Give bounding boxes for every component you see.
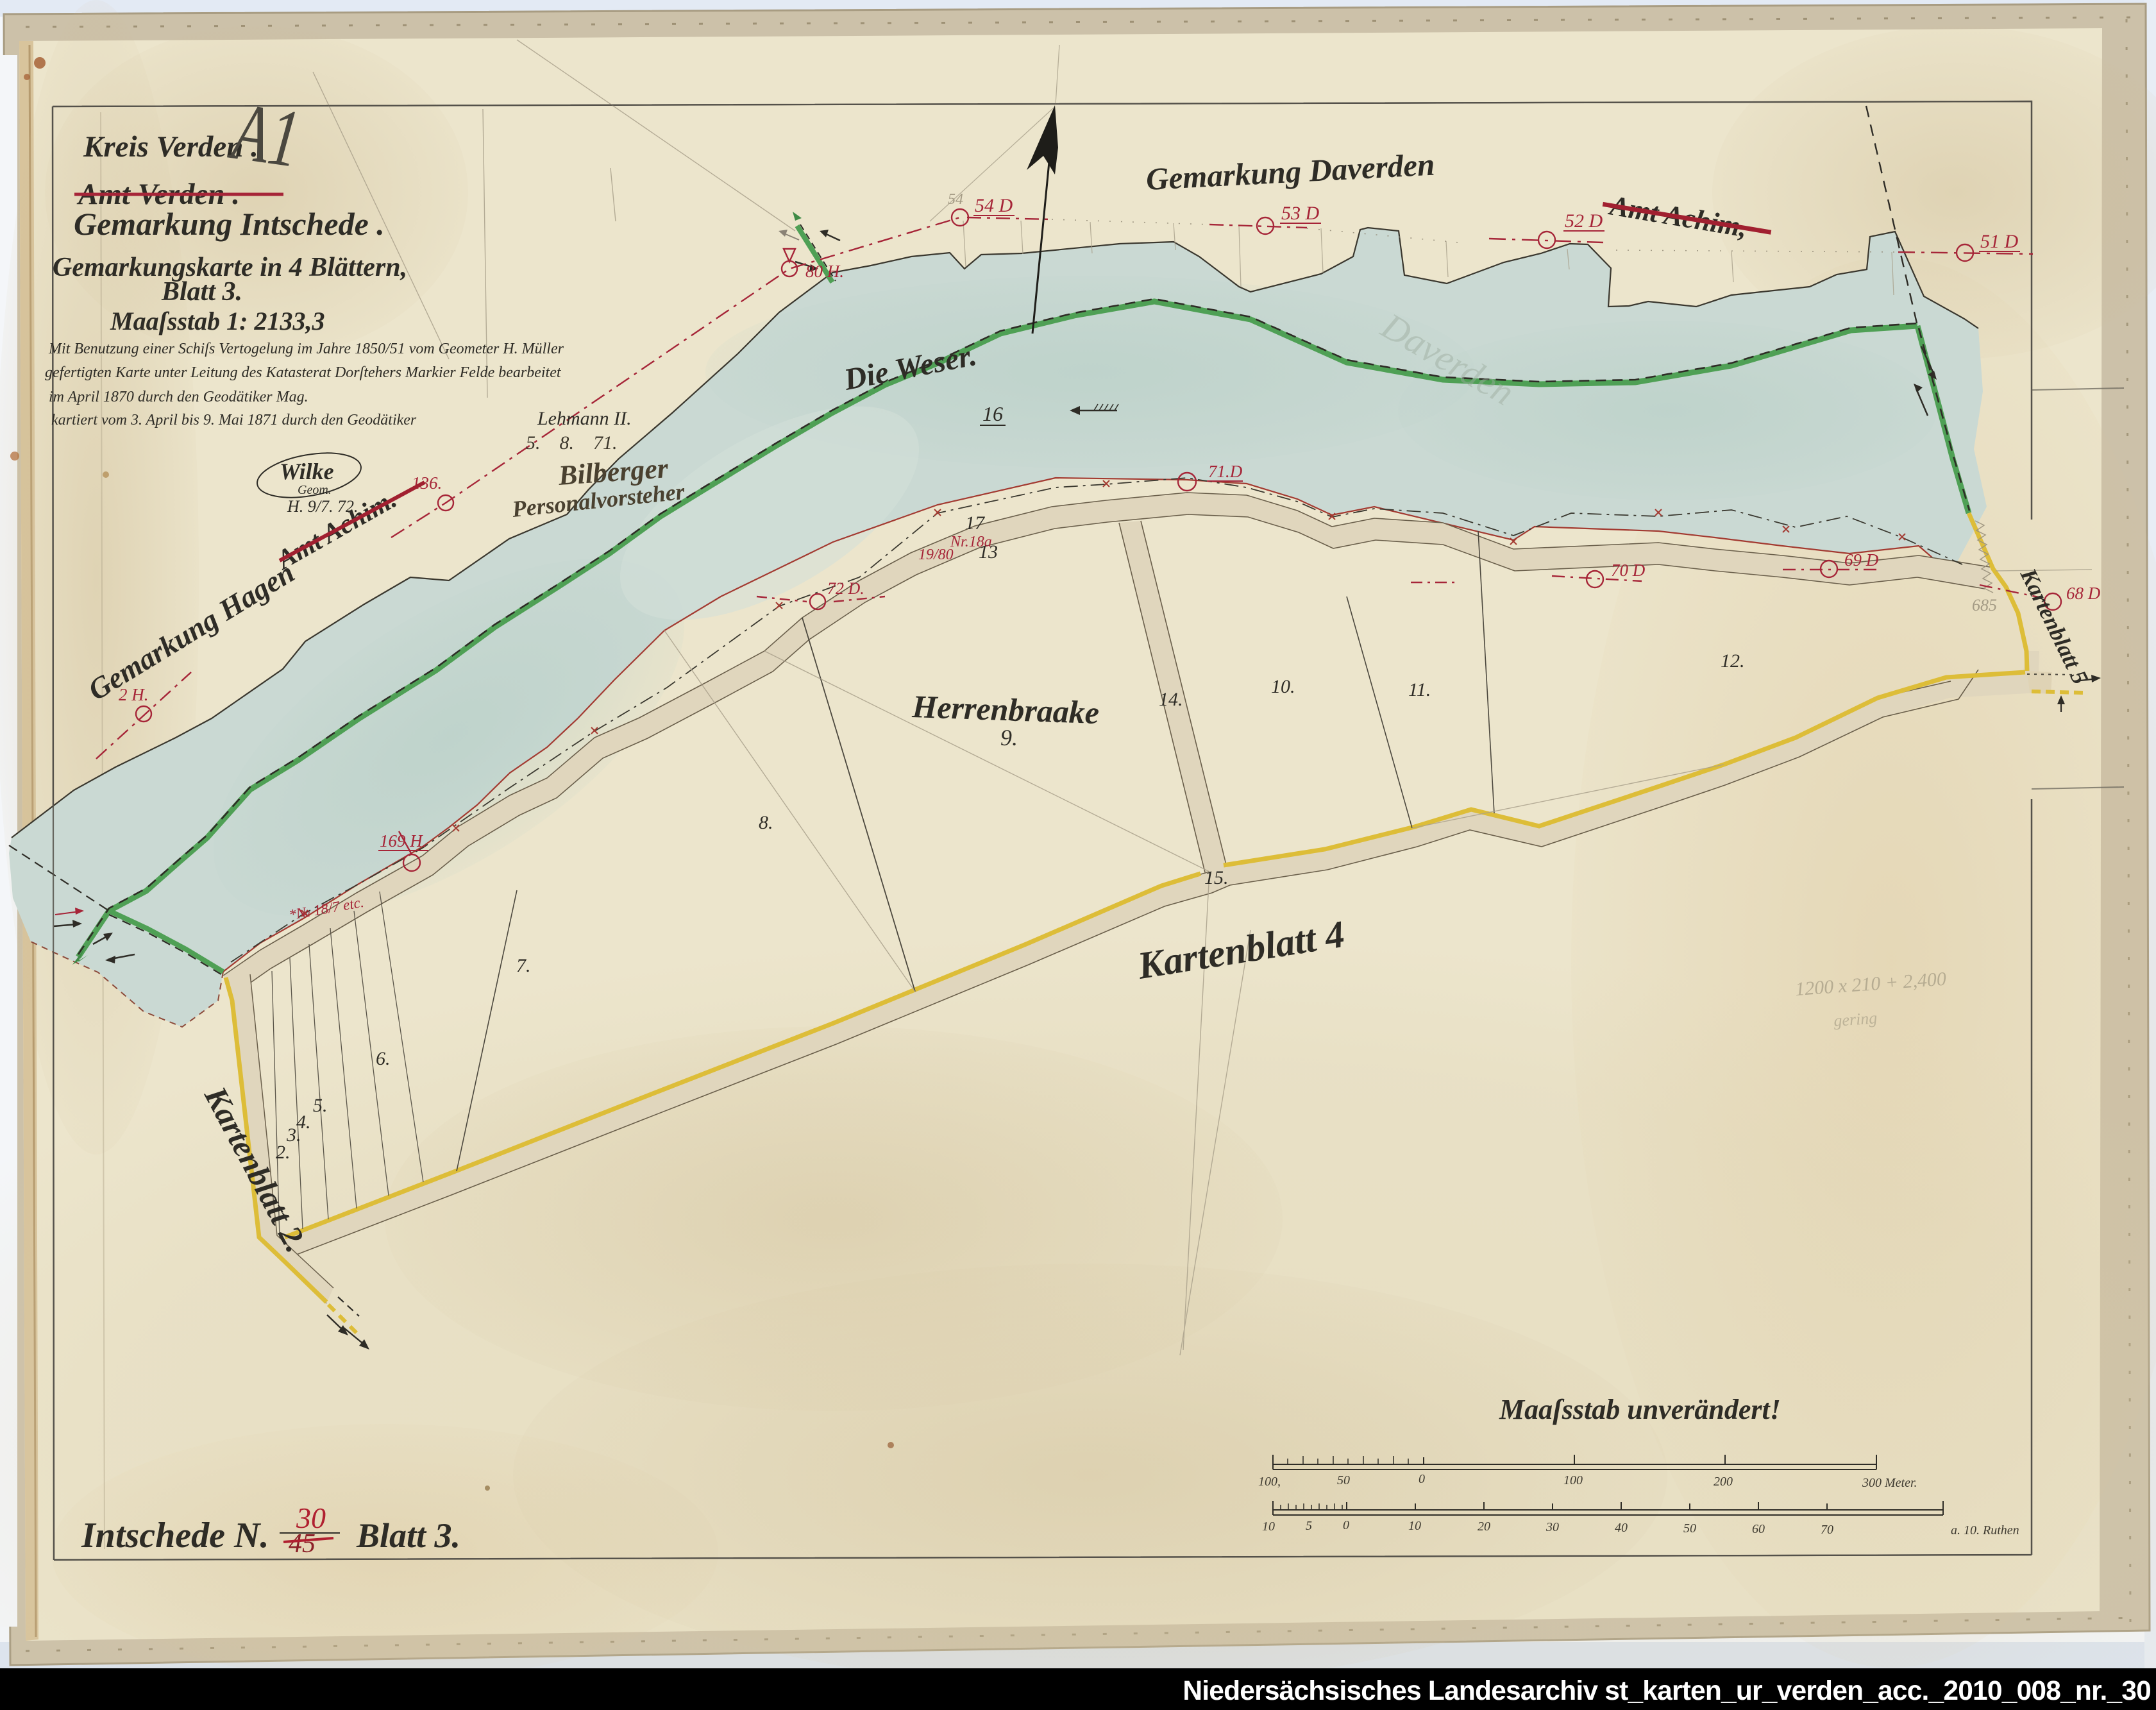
svg-text:Niedersächsisches Landesarchiv: Niedersächsisches Landesarchiv st_karten… <box>1183 1676 2151 1706</box>
svg-text:100,: 100, <box>1258 1475 1281 1489</box>
svg-text:50: 50 <box>1683 1521 1696 1536</box>
svg-text:Geom.: Geom. <box>298 483 332 497</box>
svg-text:10.: 10. <box>1271 676 1295 697</box>
svg-text:Gemarkung Intschede .: Gemarkung Intschede . <box>74 206 385 242</box>
svg-text:5.: 5. <box>313 1095 328 1116</box>
svg-text:19/80: 19/80 <box>918 546 954 563</box>
svg-text:54 D: 54 D <box>975 195 1013 216</box>
svg-text:71.D: 71.D <box>1208 462 1243 481</box>
svg-text:8.: 8. <box>759 812 773 833</box>
svg-text:40: 40 <box>1615 1521 1628 1535</box>
svg-text:13: 13 <box>979 541 998 563</box>
svg-text:70: 70 <box>1821 1523 1833 1537</box>
svg-text:20: 20 <box>1478 1520 1490 1534</box>
svg-text:14.: 14. <box>1159 689 1183 710</box>
svg-text:5. 8. 71.: 5. 8. 71. <box>526 432 618 453</box>
svg-text:kartiert vom 3. April bis 9. M: kartiert vom 3. April bis 9. Mai 1871 du… <box>51 412 417 428</box>
svg-text:136.: 136. <box>412 473 442 493</box>
svg-text:Maaſsstab unverändert!: Maaſsstab unverändert! <box>1499 1394 1781 1425</box>
svg-text:7.: 7. <box>516 955 531 976</box>
svg-text:15.: 15. <box>1204 867 1229 888</box>
svg-text:12.: 12. <box>1721 650 1745 672</box>
svg-text:0: 0 <box>1343 1518 1349 1532</box>
svg-text:68 D: 68 D <box>2066 584 2101 603</box>
svg-text:70 D: 70 D <box>1611 561 1646 580</box>
svg-text:Blatt 3.: Blatt 3. <box>356 1516 460 1555</box>
svg-text:53 D: 53 D <box>1281 203 1320 224</box>
svg-text:im April 1870 durch den Geodät: im April 1870 durch den Geodätiker Mag. <box>49 389 308 405</box>
svg-text:Maaſsstab 1: 2133,3: Maaſsstab 1: 2133,3 <box>110 307 324 335</box>
svg-text:Mit Benutzung einer Schiſs Ver: Mit Benutzung einer Schiſs Vertogelung i… <box>48 341 564 357</box>
svg-text:169 H.: 169 H. <box>380 831 427 851</box>
svg-text:4.: 4. <box>296 1112 311 1133</box>
svg-text:51 D: 51 D <box>1980 231 2019 252</box>
svg-text:72 D.: 72 D. <box>827 579 864 598</box>
svg-text:a. 10. Ruthen: a. 10. Ruthen <box>1951 1523 2019 1537</box>
svg-text:100: 100 <box>1563 1473 1583 1487</box>
svg-text:6.: 6. <box>376 1048 391 1069</box>
svg-text:52 D: 52 D <box>1565 210 1603 232</box>
svg-text:69 D: 69 D <box>1844 550 1879 570</box>
svg-text:10: 10 <box>1262 1520 1275 1534</box>
svg-text:16: 16 <box>982 402 1003 425</box>
svg-text:17: 17 <box>965 512 986 534</box>
svg-text:50: 50 <box>1337 1473 1350 1487</box>
svg-text:80 H.: 80 H. <box>805 262 844 281</box>
svg-text:60: 60 <box>1752 1522 1765 1536</box>
svg-text:gering: gering <box>1833 1008 1878 1030</box>
svg-text:Blatt 3.: Blatt 3. <box>161 277 242 307</box>
svg-text:10: 10 <box>1408 1519 1421 1533</box>
svg-text:Intschede N.: Intschede N. <box>81 1516 269 1555</box>
svg-text:200: 200 <box>1714 1475 1733 1489</box>
svg-text:5: 5 <box>1306 1519 1312 1533</box>
svg-text:11.: 11. <box>1408 679 1431 700</box>
svg-text:54: 54 <box>948 191 963 208</box>
svg-text:Wilke: Wilke <box>280 459 334 484</box>
svg-text:300 Meter.: 300 Meter. <box>1862 1476 1917 1490</box>
svg-text:0: 0 <box>1419 1472 1425 1486</box>
svg-text:9.: 9. <box>1000 725 1018 750</box>
svg-text:Lehmann II.: Lehmann II. <box>537 408 632 429</box>
svg-text:685: 685 <box>1972 596 1997 614</box>
svg-text:gefertigten Karte unter Leitun: gefertigten Karte unter Leitung des Kata… <box>45 364 562 381</box>
svg-text:30: 30 <box>1545 1520 1559 1534</box>
